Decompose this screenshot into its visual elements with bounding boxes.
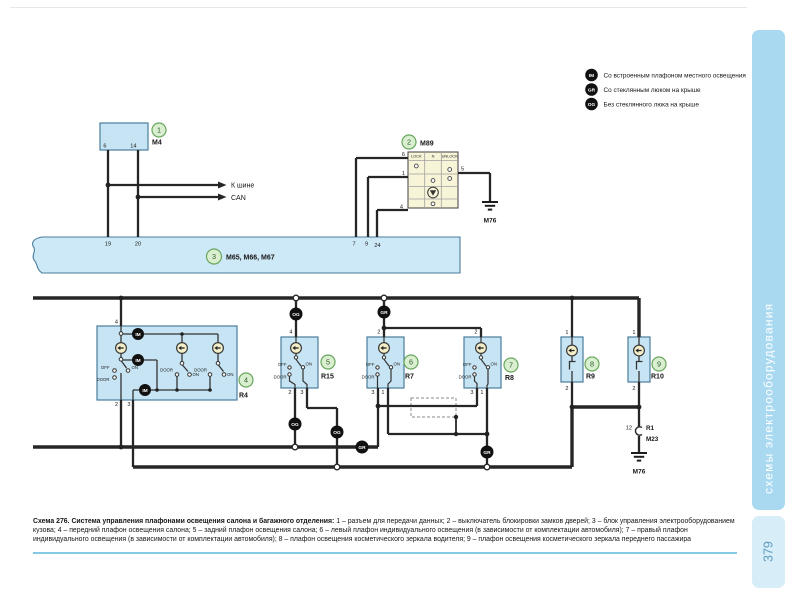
svg-text:6: 6: [103, 144, 106, 150]
legend-label: Со встроенным плафоном местного освещени…: [604, 72, 747, 79]
variant-badge-og: OG: [290, 308, 303, 321]
svg-text:1: 1: [632, 330, 635, 336]
section-tab: схемы электрооборудования: [752, 30, 785, 510]
arrow-icon: [218, 194, 227, 201]
can-bus-label-1: К шине: [231, 183, 254, 190]
svg-text:GR: GR: [358, 445, 366, 451]
svg-text:UNLOCK: UNLOCK: [442, 154, 459, 159]
svg-text:19: 19: [105, 242, 111, 248]
svg-text:IM: IM: [142, 388, 147, 394]
svg-text:9: 9: [657, 360, 661, 369]
svg-text:12: 12: [626, 426, 632, 432]
variant-badge-gr: GR: [378, 306, 391, 319]
lamp-icon: [476, 343, 487, 354]
can-bus-arrows: К шине CAN: [218, 182, 254, 203]
svg-text:GR: GR: [483, 450, 491, 456]
ground-label: М76: [484, 218, 497, 225]
lamp-icon: [379, 343, 390, 354]
svg-text:LOCK: LOCK: [411, 154, 422, 159]
svg-text:IM: IM: [135, 332, 140, 338]
m23-id: M23: [646, 436, 659, 443]
svg-text:2: 2: [632, 386, 635, 392]
switch-label-off: OFF: [101, 365, 110, 370]
switch-label-door: DOOR: [459, 375, 472, 380]
variant-badge-og: OG: [289, 418, 302, 431]
section-tab-label: схемы электрооборудования: [752, 30, 785, 510]
svg-text:2: 2: [288, 390, 291, 396]
caption-title: Схема 276. Система управления плафонами …: [33, 518, 334, 525]
switch-label-on: ON: [193, 372, 199, 377]
legend-badge-im: IM: [585, 69, 598, 82]
legend: IM Со встроенным плафоном местного освещ…: [585, 69, 746, 111]
legend-badge-gr: GR: [585, 83, 598, 96]
variant-badge-im: IM: [139, 384, 151, 396]
ground-icon: [631, 453, 647, 461]
svg-text:OG: OG: [333, 430, 341, 436]
m89-block: [408, 152, 458, 208]
svg-text:4: 4: [244, 376, 248, 385]
svg-text:GR: GR: [588, 87, 596, 93]
r8-id: R8: [505, 375, 514, 382]
ground-icon: [482, 202, 498, 210]
svg-text:3: 3: [127, 402, 130, 408]
svg-text:24: 24: [374, 243, 380, 249]
figure-caption: Схема 276. Система управления плафонами …: [33, 517, 737, 545]
switch-label-door: DOOR: [274, 375, 287, 380]
svg-text:1: 1: [480, 390, 483, 396]
switch-label-door: DOOR: [97, 377, 110, 382]
lamp-icon: [116, 343, 127, 354]
svg-text:14: 14: [130, 144, 136, 150]
r15-id: R15: [321, 374, 334, 381]
svg-text:6: 6: [409, 358, 413, 367]
ground-label: М76: [633, 469, 646, 476]
dashed-optional-box: [411, 398, 456, 417]
svg-text:IM: IM: [589, 73, 594, 79]
svg-text:1: 1: [381, 390, 384, 396]
switch-label-on: ON: [394, 362, 400, 367]
switch-label-door: DOOR: [362, 375, 375, 380]
contact: [431, 202, 435, 206]
m89-id: M89: [420, 141, 434, 148]
arrow-icon: [218, 182, 227, 189]
svg-text:4: 4: [115, 320, 118, 326]
wiring-diagram: К шине CAN OFF ON DOOR DOOR ON D: [0, 0, 800, 588]
svg-text:20: 20: [135, 242, 141, 248]
svg-text:1: 1: [157, 126, 161, 135]
r7-id: R7: [405, 374, 414, 381]
switch-label-on: ON: [227, 372, 233, 377]
variant-badge-im: IM: [132, 354, 144, 366]
wires: [33, 150, 639, 467]
m4-id: M4: [152, 140, 162, 147]
manual-page: К шине CAN OFF ON DOOR DOOR ON D: [0, 0, 800, 588]
m4-block: [100, 123, 148, 150]
svg-text:5: 5: [326, 358, 330, 367]
lamp-icon: [177, 343, 188, 354]
svg-text:3: 3: [300, 390, 303, 396]
caption-rule: [33, 552, 737, 554]
svg-text:4: 4: [289, 330, 292, 336]
band-id: М65, М66, М67: [226, 255, 275, 262]
contact: [448, 168, 452, 172]
r1-connector-icon: [635, 427, 642, 435]
svg-text:3: 3: [470, 390, 473, 396]
svg-text:3: 3: [371, 390, 374, 396]
svg-text:4: 4: [400, 205, 403, 211]
junction-dots: [106, 183, 642, 450]
legend-label: Без стеклянного люка на крыше: [604, 101, 700, 108]
legend-label: Со стеклянным люком на крыше: [604, 87, 701, 94]
svg-text:N: N: [432, 154, 435, 159]
variant-badge-gr: GR: [481, 446, 494, 459]
svg-text:1: 1: [402, 171, 405, 177]
contact: [414, 164, 418, 168]
r1-id: R1: [646, 425, 655, 432]
switch-label-door: DOOR: [194, 368, 207, 373]
svg-text:2: 2: [474, 330, 477, 336]
svg-text:2: 2: [407, 138, 411, 147]
svg-text:OG: OG: [291, 422, 299, 428]
svg-text:7: 7: [509, 361, 513, 370]
svg-text:9: 9: [365, 242, 368, 248]
svg-text:2: 2: [377, 330, 380, 336]
page-number: 379: [752, 516, 785, 588]
svg-text:IM: IM: [135, 358, 140, 364]
lamp-icon: [291, 343, 302, 354]
variant-badge-og: OG: [331, 426, 344, 439]
svg-text:OG: OG: [292, 312, 300, 318]
r4-id: R4: [239, 393, 248, 400]
page-number-tab: 379: [752, 516, 785, 588]
svg-text:1: 1: [565, 330, 568, 336]
switch-label-off: OFF: [366, 362, 375, 367]
legend-badge-og: OG: [585, 98, 598, 111]
contact: [431, 179, 435, 183]
svg-text:5: 5: [461, 167, 464, 173]
switch-label-on: ON: [491, 362, 497, 367]
lamp-icon: [634, 345, 645, 356]
variant-badge-gr: GR: [356, 441, 369, 454]
svg-text:2: 2: [115, 402, 118, 408]
svg-text:OG: OG: [588, 102, 596, 108]
switch-label-off: OFF: [278, 362, 287, 367]
svg-text:7: 7: [352, 242, 355, 248]
svg-text:6: 6: [402, 152, 405, 158]
svg-text:8: 8: [590, 360, 594, 369]
contact: [448, 177, 452, 181]
svg-text:2: 2: [565, 386, 568, 392]
page-edge-line: [10, 7, 747, 8]
switch-label-off: OFF: [463, 362, 472, 367]
svg-text:3: 3: [212, 252, 216, 261]
lamp-icon: [567, 345, 578, 356]
lamp-icon: [213, 343, 224, 354]
r10-id: R10: [651, 374, 664, 381]
svg-text:GR: GR: [380, 310, 388, 316]
r9-id: R9: [586, 374, 595, 381]
variant-badge-im: IM: [132, 328, 144, 340]
switch-label-door: DOOR: [160, 368, 173, 373]
can-bus-label-2: CAN: [231, 195, 246, 202]
switch-label-on: ON: [306, 362, 312, 367]
